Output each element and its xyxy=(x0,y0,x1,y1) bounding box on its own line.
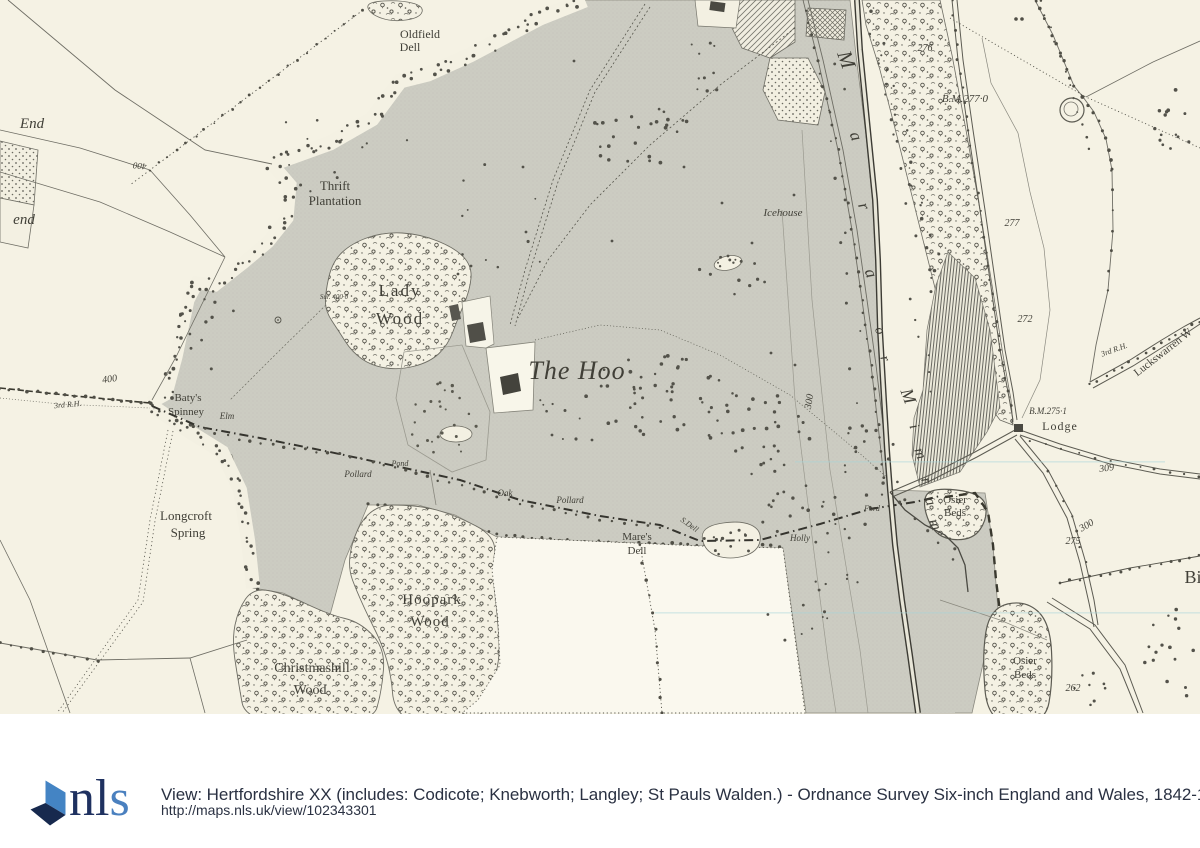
svg-text:Baty's: Baty's xyxy=(174,392,201,404)
svg-text:Icehouse: Icehouse xyxy=(762,207,802,219)
svg-text:End: End xyxy=(19,116,45,132)
svg-text:nls: nls xyxy=(69,770,130,827)
svg-text:Pollard: Pollard xyxy=(555,495,584,505)
svg-text:Osier: Osier xyxy=(1013,655,1037,667)
svg-text:Mare's: Mare's xyxy=(622,531,651,543)
svg-text:end: end xyxy=(13,212,35,228)
svg-text:Spring: Spring xyxy=(171,525,206,540)
svg-text:Sur. 400·0: Sur. 400·0 xyxy=(320,293,349,301)
svg-text:Dell: Dell xyxy=(400,40,421,54)
svg-text:Beds: Beds xyxy=(944,507,966,519)
svg-text:Beds: Beds xyxy=(1014,669,1036,681)
svg-text:Lady: Lady xyxy=(379,281,422,300)
svg-text:Wood: Wood xyxy=(410,614,449,630)
svg-text:Lodge: Lodge xyxy=(1042,419,1078,433)
svg-text:Ford: Ford xyxy=(863,504,881,513)
svg-text:277: 277 xyxy=(1005,218,1021,229)
svg-text:Holly: Holly xyxy=(789,533,810,543)
svg-text:Dell: Dell xyxy=(628,545,647,557)
svg-text:The Hoo: The Hoo xyxy=(528,356,625,385)
svg-text:276: 276 xyxy=(918,43,933,54)
svg-text:Thrift: Thrift xyxy=(320,178,351,193)
svg-text:B.M.275·1: B.M.275·1 xyxy=(1029,406,1067,416)
svg-text:Oak: Oak xyxy=(498,488,514,498)
svg-text:Wood: Wood xyxy=(376,309,424,328)
svg-text:Oldfield: Oldfield xyxy=(400,27,440,41)
svg-text:400: 400 xyxy=(101,373,117,386)
svg-text:272: 272 xyxy=(1018,314,1033,325)
svg-text:Christmashill: Christmashill xyxy=(274,661,350,676)
svg-text:262: 262 xyxy=(1066,683,1081,694)
svg-text:275: 275 xyxy=(1066,536,1081,547)
svg-text:Osier: Osier xyxy=(943,494,967,506)
svg-text:309: 309 xyxy=(1097,462,1114,475)
svg-text:Pollard: Pollard xyxy=(343,469,372,479)
svg-text:B.M.277·0: B.M.277·0 xyxy=(942,93,989,105)
svg-text:Plantation: Plantation xyxy=(309,193,362,208)
svg-text:Pond: Pond xyxy=(391,459,410,468)
svg-text:Wood: Wood xyxy=(293,683,326,698)
svg-text:Spinney: Spinney xyxy=(168,406,205,418)
svg-text:Longcroft: Longcroft xyxy=(160,508,212,523)
svg-text:400: 400 xyxy=(132,160,147,171)
svg-text:Bi: Bi xyxy=(1184,567,1200,587)
svg-text:Hoopark: Hoopark xyxy=(402,592,462,608)
svg-text:Elm: Elm xyxy=(219,411,235,421)
